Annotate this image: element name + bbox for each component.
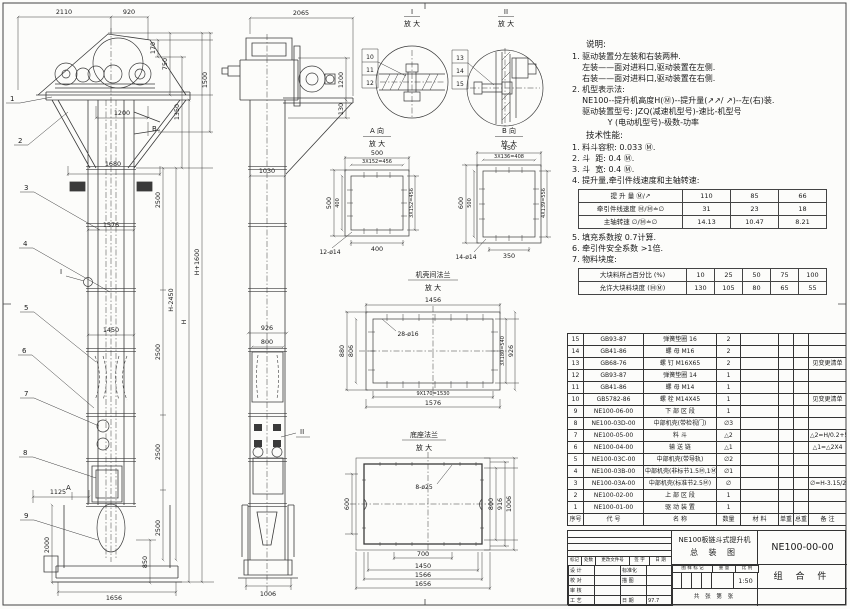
table-cell: NE100-03B-00	[584, 466, 644, 478]
leader-number: 6	[22, 347, 27, 355]
dim-label: 2065	[293, 9, 309, 17]
table-cell: 牵引件线速度 Ⓜ/Ⓜ≐∅	[579, 203, 683, 216]
dim-label: 350	[503, 252, 515, 260]
table-cell: 4	[568, 466, 584, 478]
dim-label: 2500	[154, 520, 162, 536]
wall-bracket-right	[137, 182, 152, 191]
dim-label: 850	[141, 556, 149, 568]
section-mark: I	[60, 268, 62, 276]
detail-i	[362, 17, 448, 119]
stamp-boxes: 1:50	[672, 573, 758, 589]
table-cell	[809, 418, 847, 430]
table-row: 8NE100-03D-00中部机壳(带检视门)∅3	[568, 418, 847, 430]
table-cell	[794, 478, 809, 490]
motor	[299, 66, 334, 92]
dim-label: 3X152=456	[362, 159, 392, 165]
table-row: 设 计标准化	[569, 566, 673, 576]
table-row: 牵引件线速度 Ⓜ/Ⓜ≐∅312318	[579, 203, 827, 216]
section-mark: II	[300, 428, 304, 436]
dim-label: 1030	[259, 167, 275, 175]
table-cell	[809, 370, 847, 382]
table-cell: 中部机壳(非标节1.5Ⓜ,1Ⓜ)	[644, 466, 717, 478]
dim-label: 2500	[154, 444, 162, 460]
table-row: 序号代 号名 称数量材 料单重总重备 注	[568, 514, 847, 526]
stamp-cell	[692, 573, 702, 589]
table-cell: 输 送 链	[644, 442, 717, 454]
table-cell	[809, 502, 847, 514]
detail-base	[350, 440, 496, 556]
dim-label: 3X152=456	[409, 188, 415, 218]
table-cell: 见变更清单	[809, 358, 847, 370]
rev-col-label: 处数	[582, 557, 596, 565]
table-cell: 1	[717, 502, 741, 514]
table-cell: 提 升 量 Ⓜ/↗	[579, 190, 683, 203]
leader-number: 15	[456, 81, 464, 88]
table-cell: 110	[683, 190, 731, 203]
table-row: 11GB41-86螺 母 M141	[568, 382, 847, 394]
dim-label: 926	[261, 324, 273, 332]
note-line: 1. 料斗容积: 0.033 Ⓜ.	[572, 142, 844, 153]
table-cell: 序号	[568, 514, 584, 526]
table-cell: 材 料	[741, 514, 779, 526]
section-mark: A	[66, 484, 71, 492]
table-cell: GB68-76	[584, 358, 644, 370]
dim-label: 920	[123, 8, 135, 16]
table-cell	[794, 502, 809, 514]
table-cell: 螺 母 M14	[644, 382, 717, 394]
dim-label: 1680	[105, 160, 121, 168]
dim-label: 1500	[201, 72, 209, 88]
tech-lines-pre: 1. 料斗容积: 0.033 Ⓜ.2. 斗 距: 0.4 Ⓜ.3. 斗 宽: 0…	[572, 142, 844, 186]
dim-label: 3X180=540	[500, 336, 506, 366]
dim-label: 170	[149, 42, 157, 54]
table-cell: 31	[683, 203, 731, 216]
dim-label: 916	[496, 498, 504, 510]
front-leaders	[6, 97, 148, 540]
dim-label: 2110	[56, 8, 72, 16]
detail-base-dims	[345, 458, 518, 590]
leader-number: 8	[23, 449, 27, 457]
table-cell: 10	[687, 269, 715, 282]
table-cell	[809, 406, 847, 418]
table-cell: 10	[568, 394, 584, 406]
rev-col-label: 签 字	[630, 557, 650, 565]
leader-number: 2	[18, 137, 22, 145]
table-row: 校 对描 图	[569, 576, 673, 586]
table-cell	[779, 394, 794, 406]
table-cell: 12	[568, 370, 584, 382]
table-cell: ∅	[717, 478, 741, 490]
detail-subtitle: 放 大	[498, 19, 514, 28]
dim-label: 1566	[415, 571, 431, 579]
detail-title: 机壳间法兰	[416, 270, 451, 279]
table-row: 审 核	[569, 586, 673, 596]
chain-roller-blocks	[254, 424, 281, 447]
table-cell	[779, 490, 794, 502]
table-cell: 66	[779, 190, 827, 203]
detail-b-labels: B 向 放 大 450 3X136=408 600 500 4X139=556 …	[455, 126, 547, 261]
table-row: 主轴转速 ∅/Ⓜ≐∅14.1310.478.21	[579, 216, 827, 229]
table-cell	[794, 406, 809, 418]
leader-number: 12	[366, 80, 374, 87]
table-row: 5NE100-03C-00中部机壳(带导轨)∅2	[568, 454, 847, 466]
table-cell	[741, 358, 779, 370]
hole-callout: 14-ø14	[455, 254, 476, 261]
table-cell: 名 称	[644, 514, 717, 526]
table-cell: GB41-86	[584, 382, 644, 394]
table-cell: 数量	[717, 514, 741, 526]
table-cell	[595, 566, 621, 576]
table-cell: 6	[568, 442, 584, 454]
table-cell: 中部机壳(带检视门)	[644, 418, 717, 430]
table-cell: 65	[771, 282, 799, 295]
table-cell	[741, 334, 779, 346]
dim-label: 9X170=1530	[416, 391, 449, 397]
table-cell: 8.21	[779, 216, 827, 229]
table-row: 15GB93-87弹簧垫圈 162	[568, 334, 847, 346]
table-cell	[741, 382, 779, 394]
table-cell	[809, 490, 847, 502]
dim-label: H-2450	[167, 288, 175, 311]
rev-col-label: 标记	[568, 557, 582, 565]
leader-number: 5	[24, 304, 28, 312]
dim-label: 2500	[154, 344, 162, 360]
dim-label: 1006	[505, 496, 513, 512]
table-cell	[809, 334, 847, 346]
table-cell: 75	[771, 269, 799, 282]
detail-title: 底座法兰	[410, 430, 438, 439]
table-cell	[741, 454, 779, 466]
table-cell: 弹簧垫圈 16	[644, 334, 717, 346]
dim-label: 1450	[103, 326, 119, 334]
dim-label: 600	[457, 197, 465, 209]
table-cell: ∅1	[717, 466, 741, 478]
notes-panel: 说明: 1. 驱动装置分左装和右装两种. 左装——面对进料口,驱动装置在左侧. …	[572, 40, 844, 298]
table-cell	[647, 566, 673, 576]
table-cell: 比 例	[736, 566, 759, 573]
table-row: 工 艺日 期97.7	[569, 596, 673, 606]
table-cell: 总重	[794, 514, 809, 526]
table-cell: 2	[717, 358, 741, 370]
leader-number: 9	[24, 512, 28, 520]
note-line: 4. 提升量,牵引件线速度和主轴转速:	[572, 175, 844, 186]
dim-label: 600	[343, 498, 351, 510]
table-cell: 代 号	[584, 514, 644, 526]
table-cell	[741, 406, 779, 418]
detail-ii	[452, 17, 543, 129]
table-cell: 100	[799, 269, 827, 282]
sheet-count: 共 张 第 张	[672, 589, 758, 606]
table-cell	[779, 382, 794, 394]
table-cell	[595, 596, 621, 606]
wall-bracket-left	[70, 182, 85, 191]
roller	[253, 447, 263, 457]
table-cell	[809, 454, 847, 466]
lump-size-table: 大块料所占百分比 (%)10255075100允许大块料块度 (ⓂⓂ)13010…	[578, 268, 827, 295]
bom-header-row: 序号代 号名 称数量材 料单重总重备 注	[568, 514, 847, 526]
dim-label: 3X136=408	[494, 154, 524, 160]
dim-label: 1125	[50, 488, 66, 496]
table-cell: NE100-01-00	[584, 502, 644, 514]
table-row: 大块料所占百分比 (%)10255075100	[579, 269, 827, 282]
table-cell	[779, 418, 794, 430]
tech-heading: 技术性能:	[586, 131, 844, 142]
table-cell	[741, 418, 779, 430]
stamp-cell	[682, 573, 692, 589]
front-dimension-labels: 2110 920 170 750 1350 1500 1200 1680 157…	[43, 8, 209, 602]
note-line: 右装——面对进料口,驱动装置在右侧.	[572, 73, 844, 84]
table-row: 3NE100-03A-00中部机壳(标准节2.5Ⓜ)∅∅=H-3.15/2.5	[568, 478, 847, 490]
table-cell	[809, 382, 847, 394]
table-cell	[741, 502, 779, 514]
table-cell	[794, 382, 809, 394]
note-line: 5. 填充系数按 0.7计算.	[572, 232, 844, 243]
table-cell: NE100-03A-00	[584, 478, 644, 490]
table-cell	[794, 346, 809, 358]
table-cell	[741, 466, 779, 478]
dim-label: 700	[417, 550, 429, 558]
hole-callout: 28-ø16	[397, 331, 418, 338]
drawing-sheet: 2110 920 170 750 1350 1500 1200 1680 157…	[0, 0, 850, 609]
part-type: 组 合 件	[758, 565, 847, 589]
notes-heading: 说明:	[586, 40, 844, 51]
note-line: 驱动装置型号: JZQ(减速机型号)-速比-机型号	[572, 106, 844, 117]
table-cell: ∅=H-3.15/2.5	[809, 478, 847, 490]
side-view	[222, 34, 353, 592]
dim-label: 750	[161, 58, 169, 70]
table-cell: 日 期	[621, 596, 647, 606]
hole-callout: 12-ø14	[319, 249, 340, 256]
note-line: 左装——面对进料口,驱动装置在左侧.	[572, 62, 844, 73]
dim-label: 500	[467, 198, 473, 208]
weight-cell	[712, 573, 734, 589]
tech-lines-post: 5. 填充系数按 0.7计算.6. 牵引件安全系数 >1倍.7. 物料块度:	[572, 232, 844, 265]
table-cell: GB93-87	[584, 370, 644, 382]
takeup-rollers	[97, 420, 109, 450]
table-cell: NE100-03C-00	[584, 454, 644, 466]
table-cell	[741, 430, 779, 442]
dim-label: 1656	[415, 580, 431, 588]
table-cell: 1	[717, 490, 741, 502]
table-cell: 校 对	[569, 576, 595, 586]
table-cell: 审 核	[569, 586, 595, 596]
dim-label: 1350	[173, 104, 181, 120]
table-cell	[647, 586, 673, 596]
table-cell: 备 注	[809, 514, 847, 526]
table-cell	[794, 358, 809, 370]
table-cell: 大块料所占百分比 (%)	[579, 269, 687, 282]
table-cell: NE100-06-00	[584, 406, 644, 418]
table-cell: 50	[743, 269, 771, 282]
table-cell: △1=△2X4	[809, 442, 847, 454]
table-cell: 85	[731, 190, 779, 203]
table-cell: 105	[715, 282, 743, 295]
note-line: 7. 物料块度:	[572, 254, 844, 265]
table-cell	[779, 502, 794, 514]
table-cell	[794, 370, 809, 382]
leader-number: 10	[366, 54, 374, 61]
table-cell: GB5782-86	[584, 394, 644, 406]
dim-label: 1006	[260, 590, 276, 598]
table-cell: NE100-05-00	[584, 430, 644, 442]
dim-label: 1576	[103, 221, 119, 229]
table-cell: 重 量	[713, 566, 736, 573]
table-cell: 15	[568, 334, 584, 346]
dim-label: 1200	[114, 109, 130, 117]
detail-flange-labels: 机壳间法兰 放 大 1456 28-ø16 880 806 3X180=540 …	[338, 270, 515, 407]
table-cell	[794, 466, 809, 478]
table-cell: 2	[717, 334, 741, 346]
table-cell: 80	[743, 282, 771, 295]
table-cell	[794, 490, 809, 502]
table-cell	[741, 346, 779, 358]
table-cell: 中部机壳(标准节2.5Ⓜ)	[644, 478, 717, 490]
table-cell: ∅3	[717, 418, 741, 430]
table-cell: 25	[715, 269, 743, 282]
detail-subtitle: 放 大	[404, 19, 420, 28]
hole-callout: 8-ø25	[415, 484, 432, 491]
table-cell: △2	[717, 430, 741, 442]
table-cell: △2=H/0.2+5.75	[809, 430, 847, 442]
dim-label: 926	[507, 345, 515, 357]
table-cell: 螺 钉 M16X65	[644, 358, 717, 370]
table-row: 1NE100-01-00驱 动 装 置1	[568, 502, 847, 514]
rev-col-label: 更改文件号	[596, 557, 630, 565]
table-cell: 1	[568, 502, 584, 514]
bom-table: 15GB93-87弹簧垫圈 16214GB41-86螺 母 M16213GB68…	[567, 333, 846, 530]
leader-number: 3	[24, 184, 28, 192]
table-cell	[794, 334, 809, 346]
table-row: 9NE100-06-00下 部 区 段1	[568, 406, 847, 418]
table-cell: 97.7	[647, 596, 673, 606]
scale-value: 1:50	[734, 573, 757, 589]
leader-number: 4	[23, 240, 28, 248]
leader-number: 7	[24, 390, 28, 398]
table-cell: 单重	[779, 514, 794, 526]
note-line: Y (电动机型号)-极数-功率	[572, 117, 844, 128]
table-cell	[779, 406, 794, 418]
table-row: 提 升 量 Ⓜ/↗1108566	[579, 190, 827, 203]
note-line: 1. 驱动装置分左装和右装两种.	[572, 51, 844, 62]
dim-label: 1450	[415, 562, 431, 570]
dim-label: 4X139=556	[541, 188, 547, 218]
table-row: 4NE100-03B-00中部机壳(非标节1.5Ⓜ,1Ⓜ)∅1	[568, 466, 847, 478]
table-cell: 描 图	[621, 576, 647, 586]
table-cell: 1	[717, 394, 741, 406]
table-cell: 11	[568, 382, 584, 394]
table-row: 2NE100-02-00上 部 区 段1	[568, 490, 847, 502]
bom-rows: 15GB93-87弹簧垫圈 16214GB41-86螺 母 M16213GB68…	[568, 334, 847, 514]
speed-table: 提 升 量 Ⓜ/↗1108566牵引件线速度 Ⓜ/Ⓜ≐∅312318主轴转速 ∅…	[578, 189, 827, 229]
table-cell	[779, 442, 794, 454]
dim-label: 400	[335, 198, 341, 208]
stamp-cell	[672, 573, 682, 589]
table-cell: NE100-02-00	[584, 490, 644, 502]
table-cell	[809, 346, 847, 358]
dim-label: 800	[261, 338, 273, 346]
table-cell: 2	[717, 346, 741, 358]
dim-label: 880	[338, 345, 346, 357]
table-cell: 55	[799, 282, 827, 295]
table-cell: GB93-87	[584, 334, 644, 346]
table-cell: NE100-04-00	[584, 442, 644, 454]
drawing-title-line2: 总 装 图	[672, 547, 757, 559]
leader-number: 1	[10, 95, 14, 103]
dim-label: 2500	[154, 192, 162, 208]
table-cell: 驱 动 装 置	[644, 502, 717, 514]
table-row: 12GB93-87弹簧垫圈 141	[568, 370, 847, 382]
table-cell: 允许大块料块度 (ⓂⓂ)	[579, 282, 687, 295]
table-cell: 9	[568, 406, 584, 418]
revision-header: 标记 处数 更改文件号 签 字 日 期	[568, 557, 672, 565]
table-row: 图 样 标 记重 量比 例	[673, 566, 759, 573]
detail-a-dims	[330, 156, 419, 246]
detail-subtitle: 放 大	[416, 443, 432, 452]
table-cell	[794, 394, 809, 406]
table-cell	[741, 370, 779, 382]
dim-label: 2000	[43, 537, 51, 553]
roller	[272, 447, 282, 457]
table-cell: 上 部 区 段	[644, 490, 717, 502]
table-cell	[595, 586, 621, 596]
note-line: NE100--提升机高度H(Ⓜ)--提升量(↗↗/ ↗)--左(右)装.	[572, 95, 844, 106]
dim-label: 800	[487, 498, 495, 510]
table-cell: 1	[717, 370, 741, 382]
table-cell	[794, 454, 809, 466]
table-cell: 螺 母 M16	[644, 346, 717, 358]
table-cell: ∅2	[717, 454, 741, 466]
table-cell: 13	[568, 358, 584, 370]
dim-label: 1576	[425, 399, 441, 407]
dim-label: 500	[371, 149, 383, 157]
table-cell	[779, 454, 794, 466]
table-cell	[794, 442, 809, 454]
table-cell: 2	[568, 490, 584, 502]
table-cell: GB41-86	[584, 346, 644, 358]
table-cell: 18	[779, 203, 827, 216]
drawing-number: NE100-00-00	[758, 531, 847, 565]
dim-label: 806	[347, 345, 355, 357]
side-flanges	[248, 166, 287, 506]
table-cell: 设 计	[569, 566, 595, 576]
rev-col-label: 日 期	[650, 557, 671, 565]
table-cell	[779, 346, 794, 358]
dim-label: 1200	[337, 72, 345, 88]
table-cell: 图 样 标 记	[673, 566, 713, 573]
table-cell: 螺 栓 M14X45	[644, 394, 717, 406]
table-cell	[741, 442, 779, 454]
table-cell	[621, 586, 647, 596]
stamp-header: 图 样 标 记重 量比 例	[672, 565, 758, 573]
table-cell: 1	[717, 406, 741, 418]
drawing-title-line1: NE100板链斗式提升机	[672, 534, 757, 547]
leader-number: 13	[456, 55, 464, 62]
dim-label: 450	[503, 144, 515, 152]
table-cell	[794, 418, 809, 430]
table-row: 13GB68-76螺 钉 M16X652见变更清单	[568, 358, 847, 370]
table-cell: 料 斗	[644, 430, 717, 442]
note-line: 2. 斗 距: 0.4 Ⓜ.	[572, 153, 844, 164]
table-cell	[741, 478, 779, 490]
table-row: 7NE100-05-00料 斗△2△2=H/0.2+5.75	[568, 430, 847, 442]
table-cell: △1	[717, 442, 741, 454]
note-line: 3. 斗 宽: 0.4 Ⓜ.	[572, 164, 844, 175]
table-cell	[741, 394, 779, 406]
note-line: 6. 牵引件安全系数 >1倍.	[572, 243, 844, 254]
table-cell: 5	[568, 454, 584, 466]
dim-label: 1456	[425, 296, 441, 304]
table-row: 14GB41-86螺 母 M162	[568, 346, 847, 358]
